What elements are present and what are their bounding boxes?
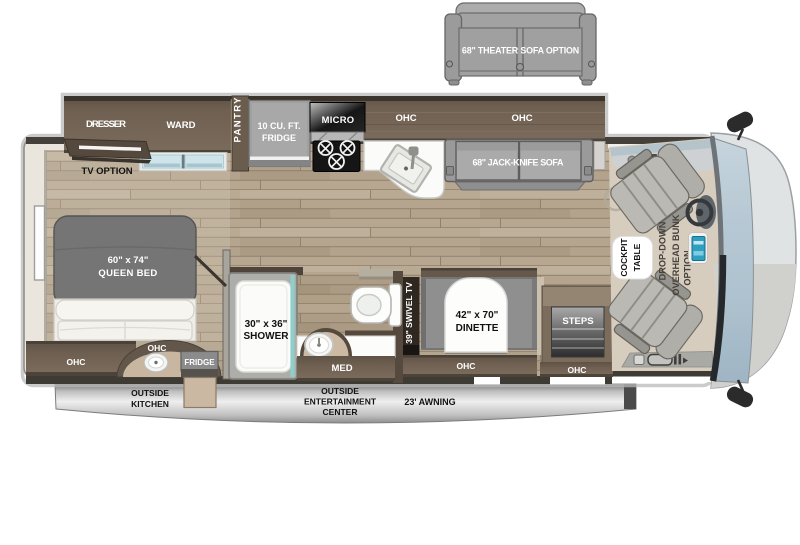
svg-text:TV OPTION: TV OPTION bbox=[81, 166, 132, 177]
svg-text:30" x 36": 30" x 36" bbox=[245, 319, 288, 330]
svg-text:ENTERTAINMENT: ENTERTAINMENT bbox=[304, 397, 377, 407]
svg-text:39" SWIVEL TV: 39" SWIVEL TV bbox=[404, 282, 414, 344]
svg-text:TABLE: TABLE bbox=[632, 243, 642, 271]
svg-text:OHC: OHC bbox=[568, 365, 587, 375]
svg-text:MED: MED bbox=[331, 363, 352, 374]
svg-text:MICRO: MICRO bbox=[322, 114, 355, 125]
svg-text:42" x 70": 42" x 70" bbox=[456, 310, 499, 321]
svg-text:OHC: OHC bbox=[395, 113, 416, 124]
svg-text:COCKPIT: COCKPIT bbox=[619, 238, 629, 277]
svg-text:QUEEN BED: QUEEN BED bbox=[98, 268, 157, 279]
svg-text:60" x 74": 60" x 74" bbox=[108, 255, 149, 266]
svg-text:FRIDGE: FRIDGE bbox=[262, 133, 296, 143]
svg-text:FRIDGE: FRIDGE bbox=[184, 358, 215, 367]
svg-text:DINETTE: DINETTE bbox=[456, 323, 499, 334]
svg-text:SHOWER: SHOWER bbox=[244, 331, 290, 342]
svg-text:WARD: WARD bbox=[166, 120, 195, 131]
svg-text:DROP-DOWN: DROP-DOWN bbox=[658, 221, 668, 280]
svg-text:68" THEATER SOFA OPTION: 68" THEATER SOFA OPTION bbox=[462, 46, 579, 56]
svg-text:DRESSER: DRESSER bbox=[86, 119, 126, 130]
svg-text:OHC: OHC bbox=[457, 361, 476, 371]
svg-text:PANTRY: PANTRY bbox=[233, 97, 244, 143]
svg-text:KITCHEN: KITCHEN bbox=[131, 399, 169, 409]
svg-text:68" JACK-KNIFE SOFA: 68" JACK-KNIFE SOFA bbox=[473, 158, 565, 168]
svg-text:OHC: OHC bbox=[148, 343, 167, 353]
svg-text:OHC: OHC bbox=[67, 357, 86, 367]
svg-text:CENTER: CENTER bbox=[323, 407, 358, 417]
svg-text:10 CU. FT.: 10 CU. FT. bbox=[257, 121, 300, 131]
svg-text:23' AWNING: 23' AWNING bbox=[404, 397, 455, 407]
svg-text:OUTSIDE: OUTSIDE bbox=[321, 386, 359, 396]
svg-text:OHC: OHC bbox=[511, 113, 532, 124]
svg-text:OVERHEAD BUNK: OVERHEAD BUNK bbox=[671, 214, 681, 296]
svg-text:STEPS: STEPS bbox=[562, 316, 593, 327]
svg-text:OUTSIDE: OUTSIDE bbox=[131, 388, 169, 398]
